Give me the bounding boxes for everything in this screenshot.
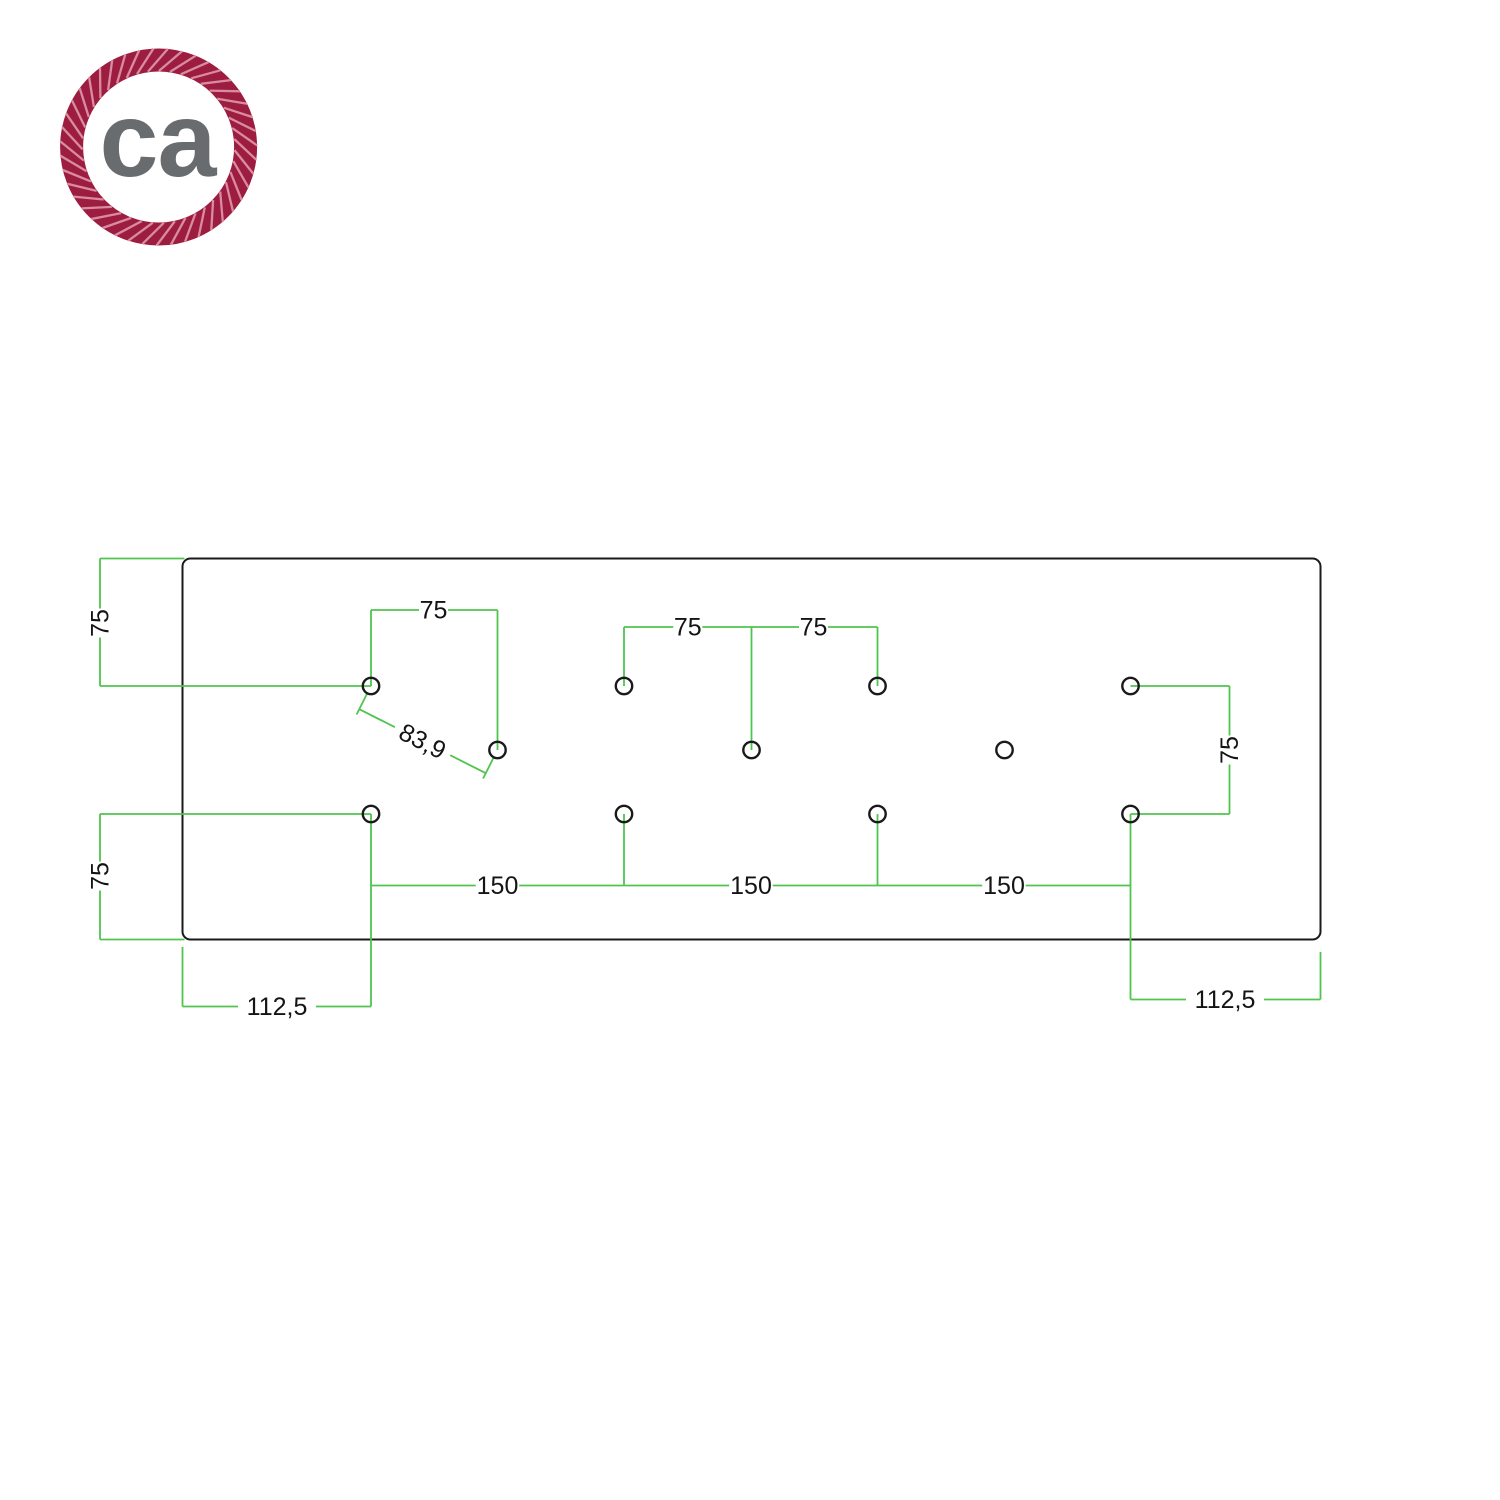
svg-text:150: 150 (730, 872, 772, 900)
svg-text:75: 75 (800, 614, 828, 642)
svg-text:150: 150 (477, 872, 519, 900)
svg-text:ca: ca (100, 81, 218, 199)
svg-text:75: 75 (87, 862, 115, 890)
svg-text:150: 150 (983, 872, 1025, 900)
svg-text:75: 75 (420, 597, 448, 625)
svg-text:112,5: 112,5 (247, 993, 308, 1021)
svg-text:112,5: 112,5 (1195, 986, 1256, 1014)
svg-text:75: 75 (1216, 736, 1244, 764)
svg-text:75: 75 (674, 614, 702, 642)
svg-text:75: 75 (87, 609, 115, 637)
